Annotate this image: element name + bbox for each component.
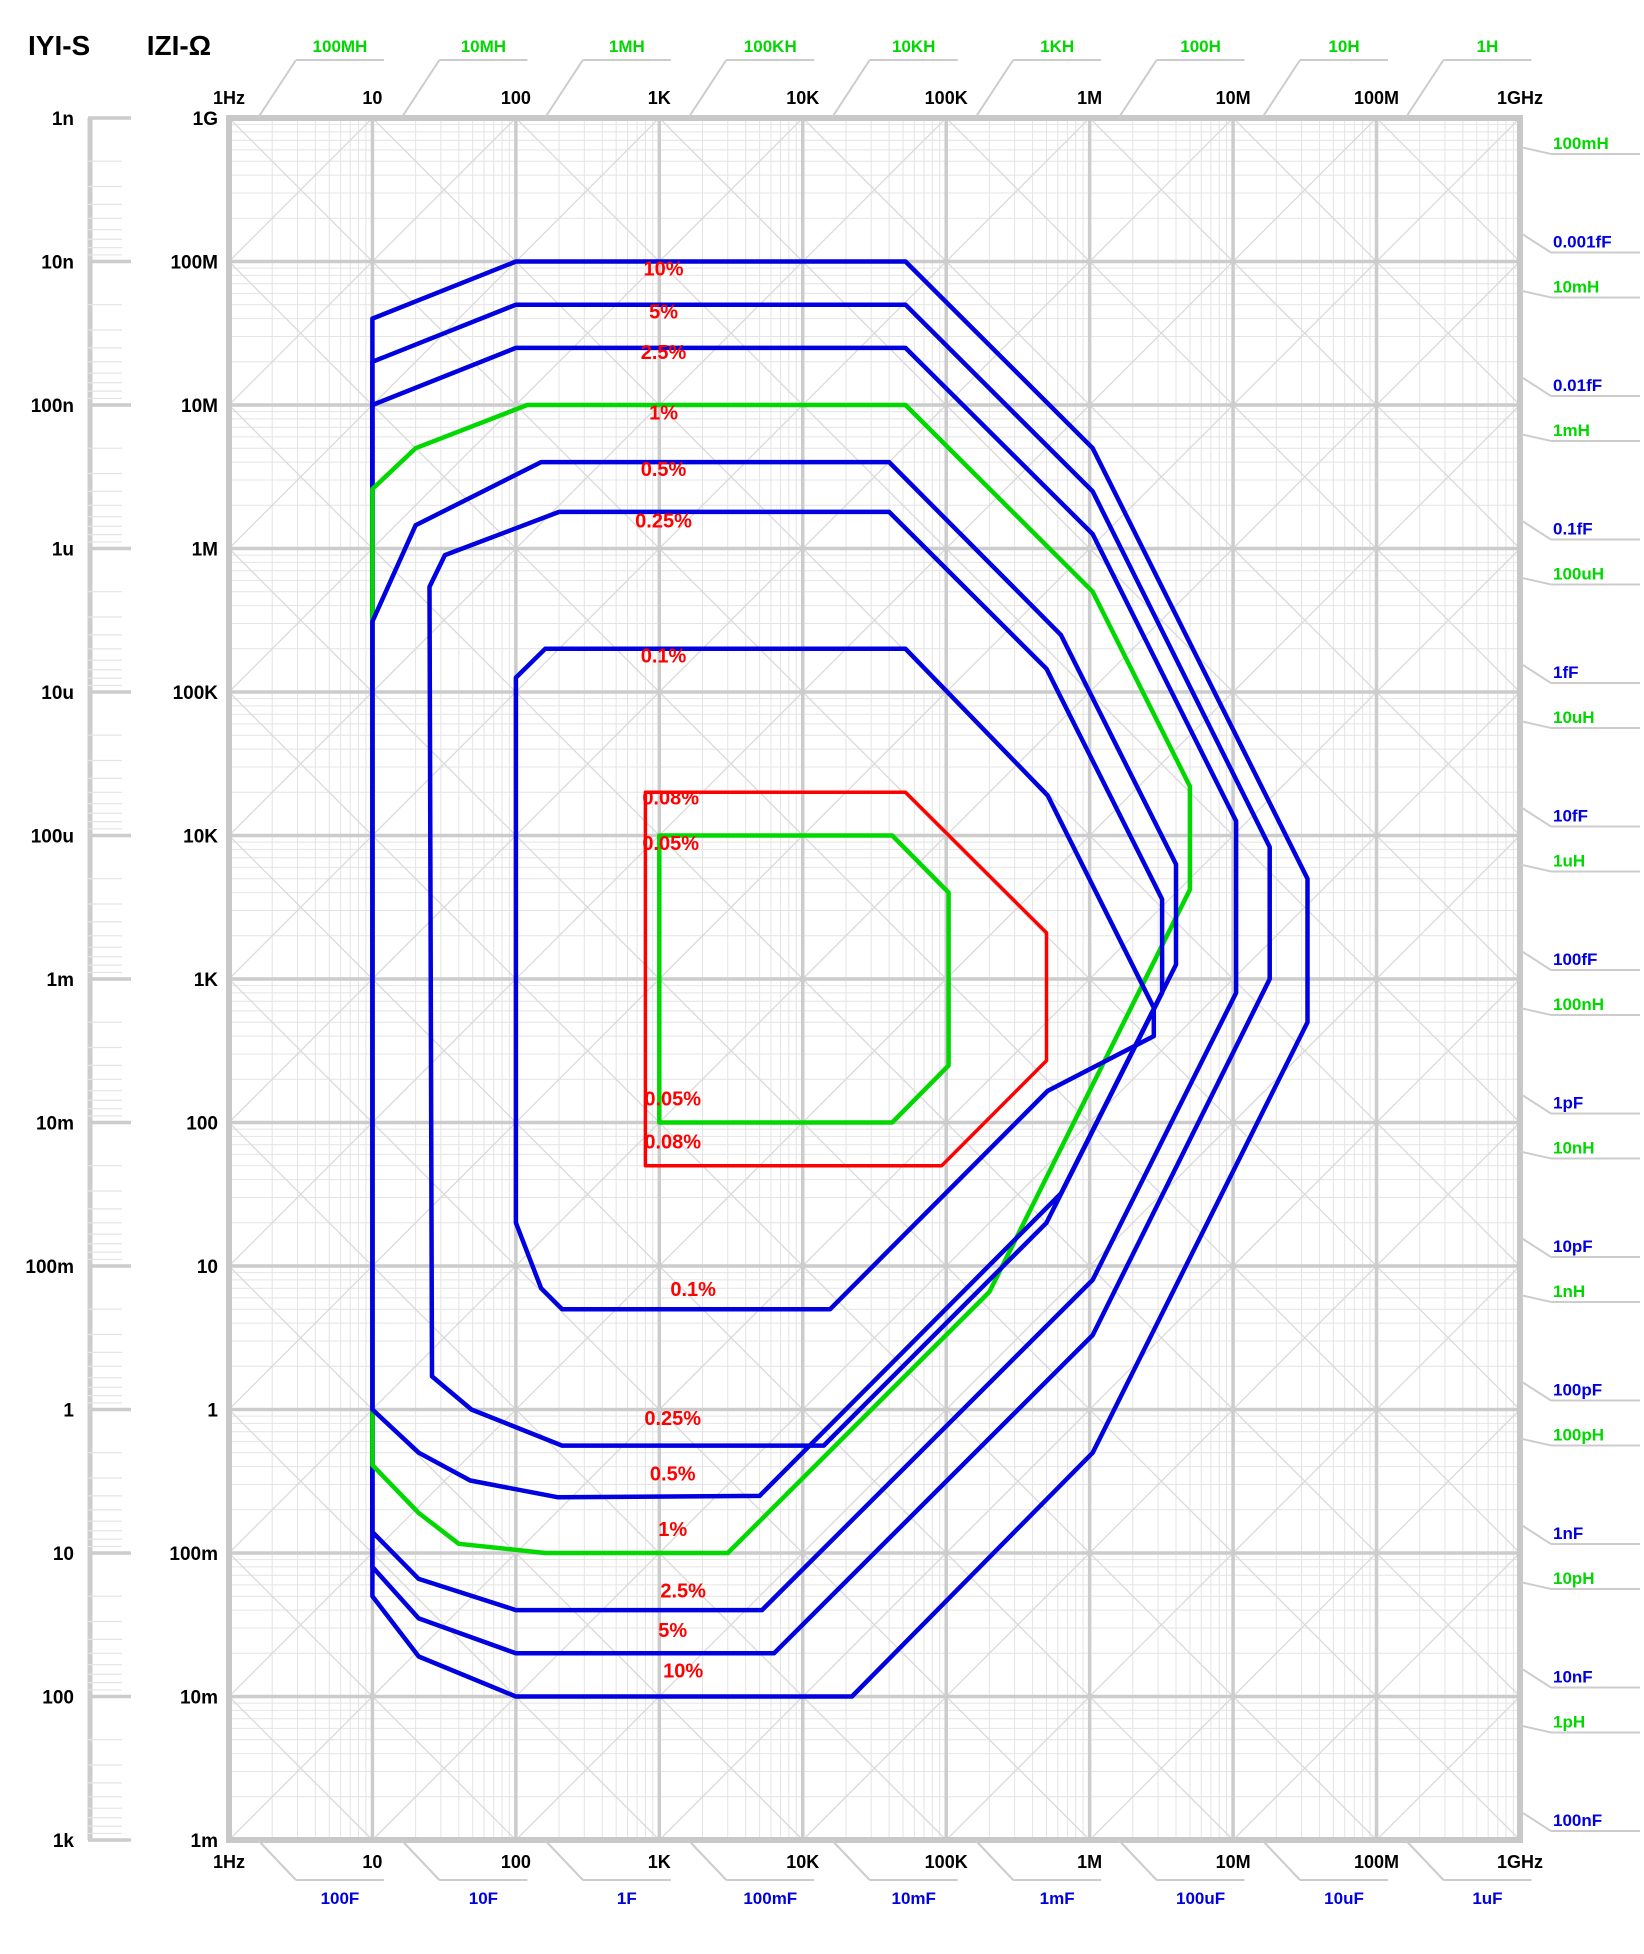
svg-text:10KH: 10KH — [892, 37, 935, 56]
svg-text:100M: 100M — [1354, 1852, 1399, 1872]
svg-text:0.08%: 0.08% — [642, 788, 699, 810]
svg-text:1pF: 1pF — [1553, 1094, 1583, 1113]
svg-text:10pF: 10pF — [1553, 1237, 1593, 1256]
svg-text:0.25%: 0.25% — [644, 1408, 701, 1430]
svg-text:100H: 100H — [1180, 37, 1221, 56]
svg-text:1mF: 1mF — [1040, 1889, 1075, 1908]
svg-text:10K: 10K — [786, 88, 819, 108]
svg-text:0.01fF: 0.01fF — [1553, 376, 1602, 395]
svg-text:10nF: 10nF — [1553, 1668, 1593, 1687]
svg-text:1uF: 1uF — [1472, 1889, 1502, 1908]
svg-text:1fF: 1fF — [1553, 663, 1579, 682]
svg-text:10M: 10M — [1216, 88, 1251, 108]
svg-text:1K: 1K — [648, 88, 671, 108]
svg-text:1M: 1M — [192, 540, 218, 561]
svg-text:100KH: 100KH — [744, 37, 797, 56]
svg-text:10: 10 — [197, 1257, 218, 1278]
svg-text:1GHz: 1GHz — [1497, 1852, 1543, 1872]
svg-text:10mH: 10mH — [1553, 277, 1599, 296]
inductance-labels-right: 100mH10mH1mH100uH10uH1uH100nH10nH1nH100p… — [1520, 134, 1640, 1733]
svg-text:10%: 10% — [663, 1660, 703, 1682]
svg-text:0.05%: 0.05% — [644, 1089, 701, 1111]
svg-text:100pH: 100pH — [1553, 1425, 1604, 1444]
svg-text:100: 100 — [42, 1688, 74, 1709]
svg-text:2.5%: 2.5% — [641, 342, 687, 364]
svg-text:0.1%: 0.1% — [670, 1279, 716, 1301]
svg-text:1MH: 1MH — [609, 37, 645, 56]
svg-text:1n: 1n — [52, 109, 74, 130]
svg-text:100pF: 100pF — [1553, 1381, 1602, 1400]
svg-text:100F: 100F — [321, 1889, 360, 1908]
svg-text:10K: 10K — [786, 1852, 819, 1872]
svg-text:1M: 1M — [1077, 1852, 1102, 1872]
svg-text:100nF: 100nF — [1553, 1811, 1602, 1830]
svg-text:10mF: 10mF — [891, 1889, 935, 1908]
svg-text:100uH: 100uH — [1553, 564, 1604, 583]
svg-text:1k: 1k — [53, 1831, 75, 1852]
capacitance-labels-bottom: 100F10F1F100mF10mF1mF100uF10uF1uF — [258, 1840, 1532, 1908]
svg-text:10MH: 10MH — [461, 37, 506, 56]
capacitance-labels-right: 0.001fF0.01fF0.1fF1fF10fF100fF1pF10pF100… — [1520, 233, 1640, 1832]
svg-text:5%: 5% — [649, 302, 678, 324]
admittance-ruler — [88, 118, 131, 1840]
svg-text:1Hz: 1Hz — [213, 88, 245, 108]
admittance-axis-title: IYI-S — [28, 30, 90, 62]
accuracy-chart: IYI-S IZI-Ω 1G100M10M1M100K10K1K10010110… — [0, 0, 1644, 1954]
svg-text:100MH: 100MH — [313, 37, 368, 56]
svg-text:1mH: 1mH — [1553, 421, 1590, 440]
svg-text:100: 100 — [186, 1114, 218, 1135]
svg-text:100u: 100u — [31, 827, 74, 848]
contour-percent-labels: 10%5%2.5%1%0.5%0.25%0.1%0.08%0.05%0.05%0… — [635, 258, 716, 1682]
svg-text:1uH: 1uH — [1553, 851, 1585, 870]
admittance-tick-labels: 1n10n100n1u10u100u1m10m100m1101001k — [25, 109, 74, 1852]
svg-text:5%: 5% — [658, 1620, 687, 1642]
svg-text:100M: 100M — [170, 253, 218, 274]
svg-text:1nF: 1nF — [1553, 1524, 1583, 1543]
svg-text:1G: 1G — [193, 109, 218, 130]
svg-text:10H: 10H — [1328, 37, 1359, 56]
svg-text:1%: 1% — [649, 403, 678, 425]
svg-text:100M: 100M — [1354, 88, 1399, 108]
svg-text:0.001fF: 0.001fF — [1553, 233, 1612, 252]
svg-text:0.1fF: 0.1fF — [1553, 520, 1593, 539]
frequency-labels-bottom: 1Hz101001K10K100K1M10M100M1GHz — [213, 1852, 1543, 1872]
svg-text:1nH: 1nH — [1553, 1282, 1585, 1301]
svg-text:100nH: 100nH — [1553, 995, 1604, 1014]
svg-text:10M: 10M — [1216, 1852, 1251, 1872]
chart-svg: 1G100M10M1M100K10K1K100101100m10m1m1n10n… — [0, 0, 1644, 1954]
svg-text:0.5%: 0.5% — [641, 459, 687, 481]
svg-text:1m: 1m — [47, 970, 74, 991]
svg-text:0.5%: 0.5% — [650, 1464, 696, 1486]
svg-text:100m: 100m — [169, 1544, 218, 1565]
svg-text:10F: 10F — [469, 1889, 498, 1908]
svg-text:0.1%: 0.1% — [641, 646, 687, 668]
svg-text:100: 100 — [501, 1852, 531, 1872]
svg-text:1Hz: 1Hz — [213, 1852, 245, 1872]
frequency-labels-top: 1Hz101001K10K100K1M10M100M1GHz — [213, 88, 1543, 108]
svg-text:10: 10 — [362, 1852, 382, 1872]
svg-text:100: 100 — [501, 88, 531, 108]
impedance-axis-title: IZI-Ω — [147, 30, 211, 62]
svg-text:1K: 1K — [648, 1852, 671, 1872]
svg-text:1K: 1K — [194, 970, 219, 991]
svg-text:2.5%: 2.5% — [660, 1580, 706, 1602]
svg-text:10%: 10% — [644, 258, 684, 280]
svg-text:1KH: 1KH — [1040, 37, 1074, 56]
axis-titles: IYI-S IZI-Ω — [28, 30, 211, 62]
svg-text:10m: 10m — [36, 1114, 74, 1135]
svg-text:1u: 1u — [52, 540, 74, 561]
svg-text:100m: 100m — [25, 1257, 74, 1278]
svg-text:1m: 1m — [191, 1831, 218, 1852]
svg-text:10uF: 10uF — [1324, 1889, 1364, 1908]
svg-text:10u: 10u — [41, 683, 74, 704]
svg-text:10m: 10m — [180, 1688, 218, 1709]
svg-text:1GHz: 1GHz — [1497, 88, 1543, 108]
svg-text:0.25%: 0.25% — [635, 511, 692, 533]
svg-text:1pH: 1pH — [1553, 1712, 1585, 1731]
svg-text:100mH: 100mH — [1553, 134, 1609, 153]
svg-text:10fF: 10fF — [1553, 807, 1588, 826]
inductance-labels-top: 100MH10MH1MH100KH10KH1KH100H10H1H — [258, 37, 1532, 118]
svg-text:100n: 100n — [31, 396, 74, 417]
svg-text:10nH: 10nH — [1553, 1138, 1595, 1157]
svg-text:1M: 1M — [1077, 88, 1102, 108]
svg-text:10K: 10K — [183, 827, 218, 848]
svg-text:100K: 100K — [925, 1852, 968, 1872]
svg-text:10: 10 — [362, 88, 382, 108]
svg-text:10uH: 10uH — [1553, 708, 1595, 727]
svg-text:100K: 100K — [173, 683, 219, 704]
svg-text:1: 1 — [63, 1401, 74, 1422]
svg-text:1F: 1F — [617, 1889, 637, 1908]
impedance-tick-labels: 1G100M10M1M100K10K1K100101100m10m1m — [169, 109, 218, 1852]
svg-text:1H: 1H — [1477, 37, 1499, 56]
svg-text:100uF: 100uF — [1176, 1889, 1225, 1908]
svg-text:100mF: 100mF — [743, 1889, 797, 1908]
svg-text:10n: 10n — [41, 253, 74, 274]
svg-text:100K: 100K — [925, 88, 968, 108]
svg-text:100fF: 100fF — [1553, 950, 1597, 969]
svg-text:1: 1 — [207, 1401, 218, 1422]
svg-text:10pH: 10pH — [1553, 1569, 1595, 1588]
svg-text:10M: 10M — [181, 396, 218, 417]
svg-text:10: 10 — [53, 1544, 74, 1565]
svg-text:0.05%: 0.05% — [642, 833, 699, 855]
svg-text:0.08%: 0.08% — [644, 1131, 701, 1153]
svg-text:1%: 1% — [658, 1519, 687, 1541]
